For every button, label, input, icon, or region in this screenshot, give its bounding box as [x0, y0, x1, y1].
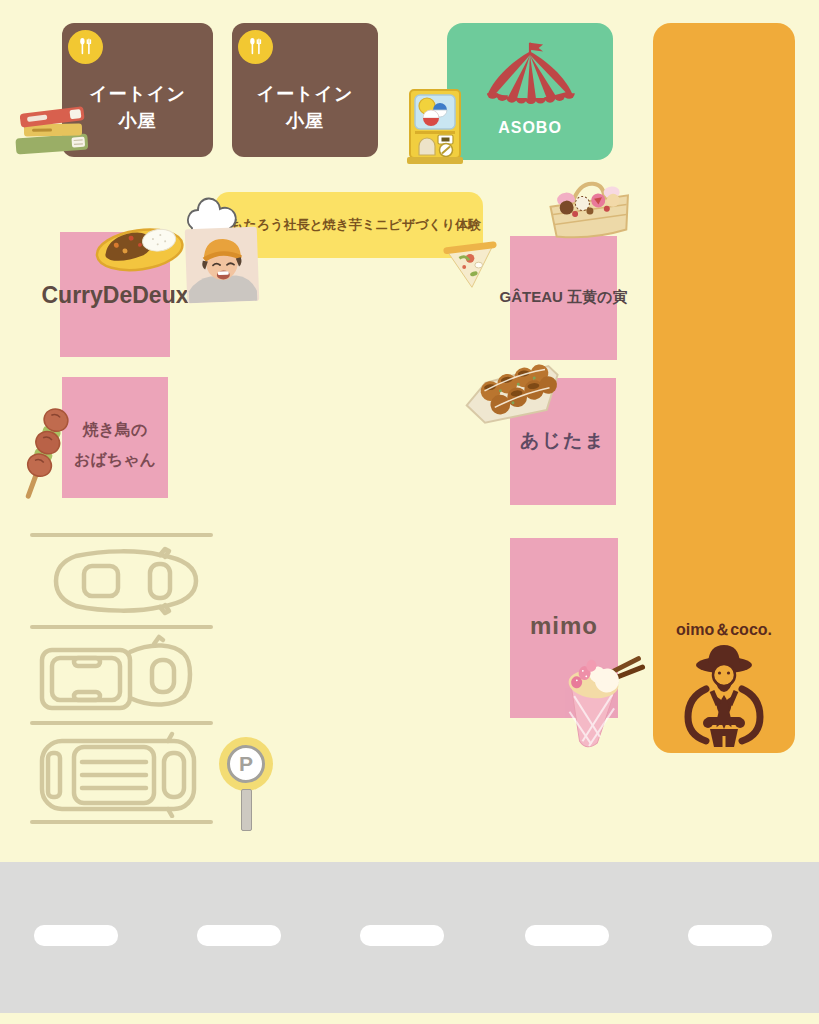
road-dash	[34, 925, 118, 946]
stall-label-oimo: oimo＆coco.	[676, 620, 772, 641]
stall-gateau-gooh-no-tora: GÂTEAU 五黄の寅	[510, 236, 617, 360]
road-dash	[360, 925, 444, 946]
stall-oimo-coco: oimo＆coco.	[653, 23, 795, 753]
stall-label-eat-in-2: イートイン 小屋	[232, 81, 378, 135]
stall-label-curry: CurryDeDeux	[42, 282, 189, 309]
parking-sign-icon: P	[219, 737, 273, 791]
stall-eat-in-hut-2: イートイン 小屋	[232, 23, 378, 157]
books-icon	[12, 98, 98, 162]
stall-label-gateau: GÂTEAU 五黄の寅	[500, 288, 628, 307]
crepe-icon	[537, 641, 647, 756]
parking-sign-letter: P	[227, 745, 265, 783]
car-outline-icon	[36, 632, 198, 716]
car-outline-icon	[52, 545, 202, 617]
sweet-potato-farmer-icon	[676, 641, 772, 753]
circus-tent-icon	[480, 41, 580, 121]
curry-plate-icon	[90, 211, 189, 279]
stall-label-mimo: mimo	[530, 612, 598, 640]
parking-sign-post	[241, 789, 252, 831]
road-dash	[525, 925, 609, 946]
car-outline-icon	[36, 730, 202, 818]
parking-line	[30, 721, 213, 725]
parking-line	[30, 625, 213, 629]
parking-line	[30, 533, 213, 537]
gacha-machine-icon	[407, 87, 463, 165]
sweets-basket-icon	[541, 177, 639, 247]
stall-label-ajitama: あじたま	[520, 428, 606, 454]
chef-photo	[185, 227, 260, 303]
utensils-icon	[238, 30, 273, 64]
parking-line	[30, 820, 213, 824]
road	[0, 862, 819, 1013]
pizza-slice-icon	[442, 241, 498, 293]
road-dash	[197, 925, 281, 946]
stall-label-asobo: ASOBO	[447, 119, 613, 137]
event-map: oimo＆coco.	[0, 0, 819, 1024]
utensils-icon	[68, 30, 103, 64]
road-dash	[688, 925, 772, 946]
stall-asobo: ASOBO	[447, 23, 613, 160]
